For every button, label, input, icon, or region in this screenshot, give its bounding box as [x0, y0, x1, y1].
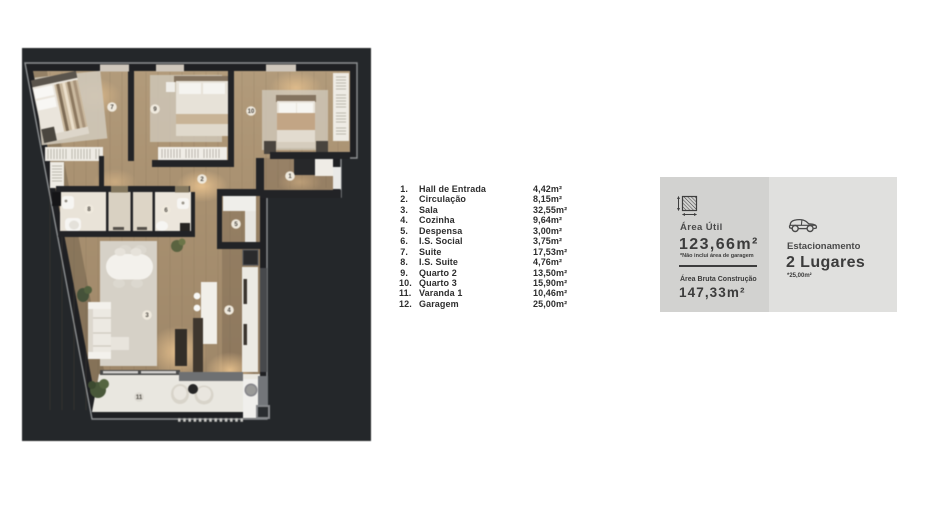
svg-text:10: 10 [248, 109, 255, 115]
svg-text:11: 11 [136, 395, 143, 401]
